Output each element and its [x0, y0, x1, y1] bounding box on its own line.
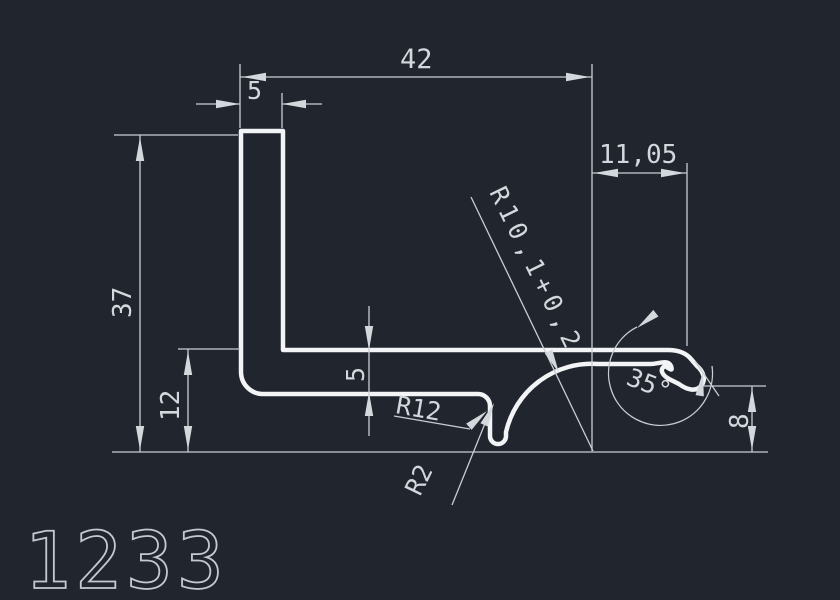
dim-5-top-label: 5 [247, 76, 262, 105]
dim-12-label: 12 [156, 390, 186, 421]
dim-42-label: 42 [400, 44, 433, 75]
dim-11-05-label: 11,05 [599, 140, 677, 170]
cad-drawing-canvas: 42 5 11,05 37 12 5 [0, 0, 840, 600]
dim-37-label: 37 [108, 287, 138, 318]
dim-8-label: 8 [725, 413, 755, 429]
dim-5-web-label: 5 [341, 367, 370, 382]
part-number: 1233 [24, 517, 228, 600]
